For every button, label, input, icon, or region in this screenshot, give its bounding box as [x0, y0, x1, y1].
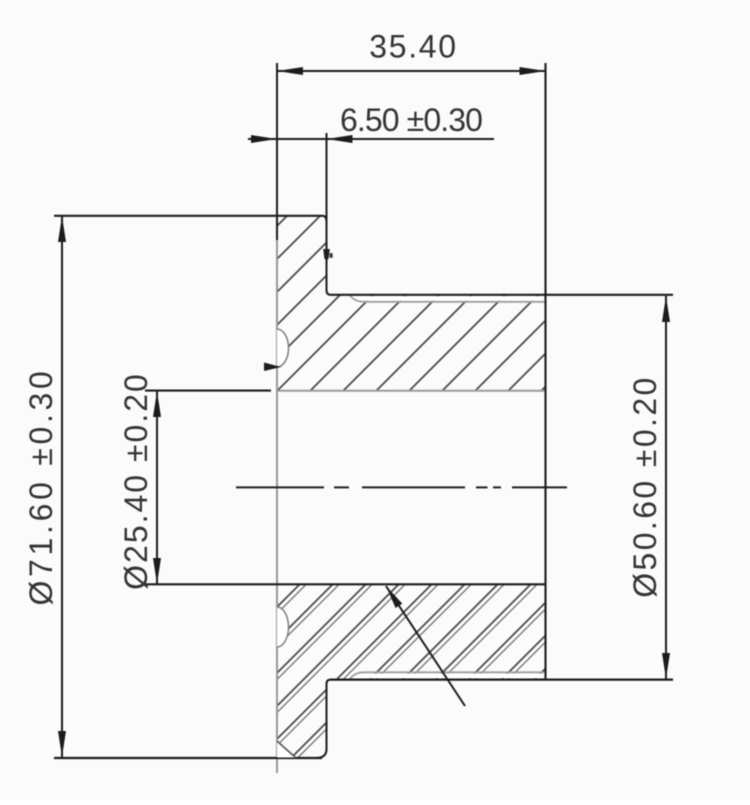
svg-text:6.50 ±0.30: 6.50 ±0.30 [340, 102, 482, 138]
svg-text:35.40: 35.40 [369, 29, 458, 65]
svg-text:Ø50.60 ±0.20: Ø50.60 ±0.20 [627, 375, 663, 598]
svg-text:Ø25.40 ±0.20: Ø25.40 ±0.20 [118, 372, 154, 590]
svg-text:Ø71.60 ±0.30: Ø71.60 ±0.30 [23, 367, 59, 605]
